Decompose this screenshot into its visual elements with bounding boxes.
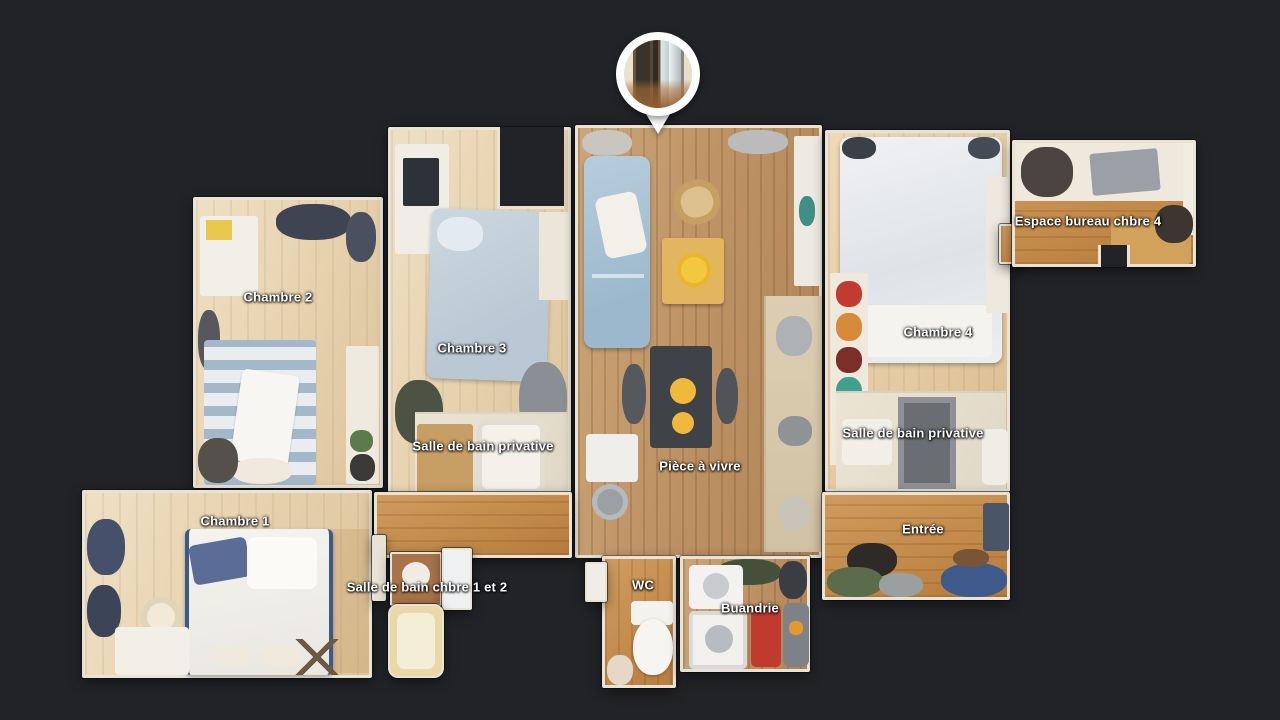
- blanket-fold: [209, 645, 249, 667]
- storage-box: [350, 454, 375, 481]
- bath-counter[interactable]: [390, 552, 442, 606]
- bath-sink: [842, 419, 892, 465]
- wall-notch: [497, 127, 564, 209]
- clothes-pile: [276, 204, 351, 240]
- panorama-pin[interactable]: [616, 32, 700, 116]
- bath-fixture[interactable]: [372, 535, 386, 601]
- room-chambre-3[interactable]: [388, 127, 571, 497]
- sink: [776, 316, 812, 356]
- bag-detail: [789, 621, 803, 635]
- desk-chair: [1155, 205, 1193, 243]
- desk: [200, 216, 258, 296]
- clutter: [582, 130, 632, 156]
- decor-item: [799, 196, 815, 226]
- monitor: [403, 158, 439, 206]
- sofa: [584, 156, 650, 348]
- shelf: [346, 346, 379, 484]
- room-entree[interactable]: [822, 492, 1010, 600]
- pillow: [842, 137, 876, 159]
- fridge: [586, 434, 638, 482]
- bathtub-basin: [397, 613, 435, 669]
- bed: [426, 208, 552, 382]
- wall-notch: [1098, 245, 1130, 267]
- room-piece-a-vivre[interactable]: [575, 125, 822, 558]
- plate: [672, 412, 694, 434]
- pin-photo-thumbnail: [624, 40, 692, 108]
- bathroom-floor: [836, 391, 1006, 489]
- clutter: [198, 438, 238, 483]
- clothes-pile: [941, 563, 1007, 597]
- clutter: [728, 130, 788, 154]
- shoe-rack: [953, 549, 989, 567]
- coffee-table: [662, 238, 724, 304]
- doormat: [983, 503, 1009, 551]
- bath-counter: [417, 424, 473, 494]
- pillow: [968, 137, 1000, 159]
- washer-door: [705, 625, 733, 653]
- room-chambre-1[interactable]: [82, 490, 372, 678]
- laundry-bag: [783, 603, 809, 667]
- wc-sink[interactable]: [585, 562, 607, 602]
- toilet: [982, 429, 1008, 485]
- chair: [622, 364, 646, 424]
- window-ledge: [794, 136, 820, 286]
- clothes: [836, 347, 862, 373]
- sofa-pillow: [594, 190, 648, 259]
- desk-clutter: [1021, 147, 1073, 197]
- plant: [350, 430, 373, 452]
- bathroom-floor: [415, 412, 568, 494]
- clothes-pile: [87, 519, 125, 575]
- kitchen-sink: [592, 484, 628, 520]
- cooktop: [778, 416, 812, 446]
- dollhouse-viewport: Chambre 2 Chambre 3 Salle de bain privat…: [0, 0, 1280, 720]
- kitchen-counter: [764, 296, 822, 552]
- shelf: [539, 212, 569, 300]
- room-chambre-2[interactable]: [193, 197, 383, 488]
- plate: [670, 378, 696, 404]
- drying-rack: [291, 639, 343, 675]
- clothes-pile: [346, 212, 376, 262]
- bathtub[interactable]: [388, 604, 444, 678]
- floorplan: Chambre 2 Chambre 3 Salle de bain privat…: [0, 0, 1280, 720]
- washer-door: [703, 573, 729, 599]
- hallway[interactable]: [374, 492, 572, 558]
- washing-machine: [689, 565, 743, 609]
- shower[interactable]: [442, 548, 472, 610]
- bath-sink: [402, 562, 430, 588]
- desk-item: [206, 220, 232, 240]
- shower: [898, 397, 956, 489]
- toilet-bowl: [633, 619, 673, 675]
- sofa-seam: [592, 274, 644, 278]
- room-wc[interactable]: [602, 556, 676, 688]
- clutter: [779, 561, 807, 599]
- laptop: [1089, 148, 1160, 196]
- tray: [677, 253, 711, 287]
- clutter: [607, 655, 633, 685]
- counter-item: [780, 496, 810, 530]
- pillow: [247, 537, 317, 589]
- storage: [879, 573, 923, 597]
- clothes: [836, 281, 862, 307]
- clothes: [836, 313, 862, 341]
- dining-table: [650, 346, 712, 448]
- rattan-chair: [668, 174, 725, 230]
- room-espace-bureau[interactable]: [1012, 140, 1196, 267]
- room-buandrie[interactable]: [680, 556, 810, 672]
- pillow: [437, 216, 484, 252]
- pillow: [188, 536, 252, 585]
- plants: [827, 567, 883, 597]
- pillow: [232, 458, 292, 484]
- washing-machine: [689, 611, 747, 669]
- chair: [716, 368, 738, 424]
- mattress-end: [850, 305, 992, 357]
- vanity-desk: [115, 627, 189, 675]
- duvet: [230, 368, 300, 467]
- room-chambre-4[interactable]: [825, 130, 1010, 492]
- laundry-basket: [751, 607, 781, 667]
- desk-surface: [1015, 143, 1193, 201]
- bathtub: [477, 420, 545, 494]
